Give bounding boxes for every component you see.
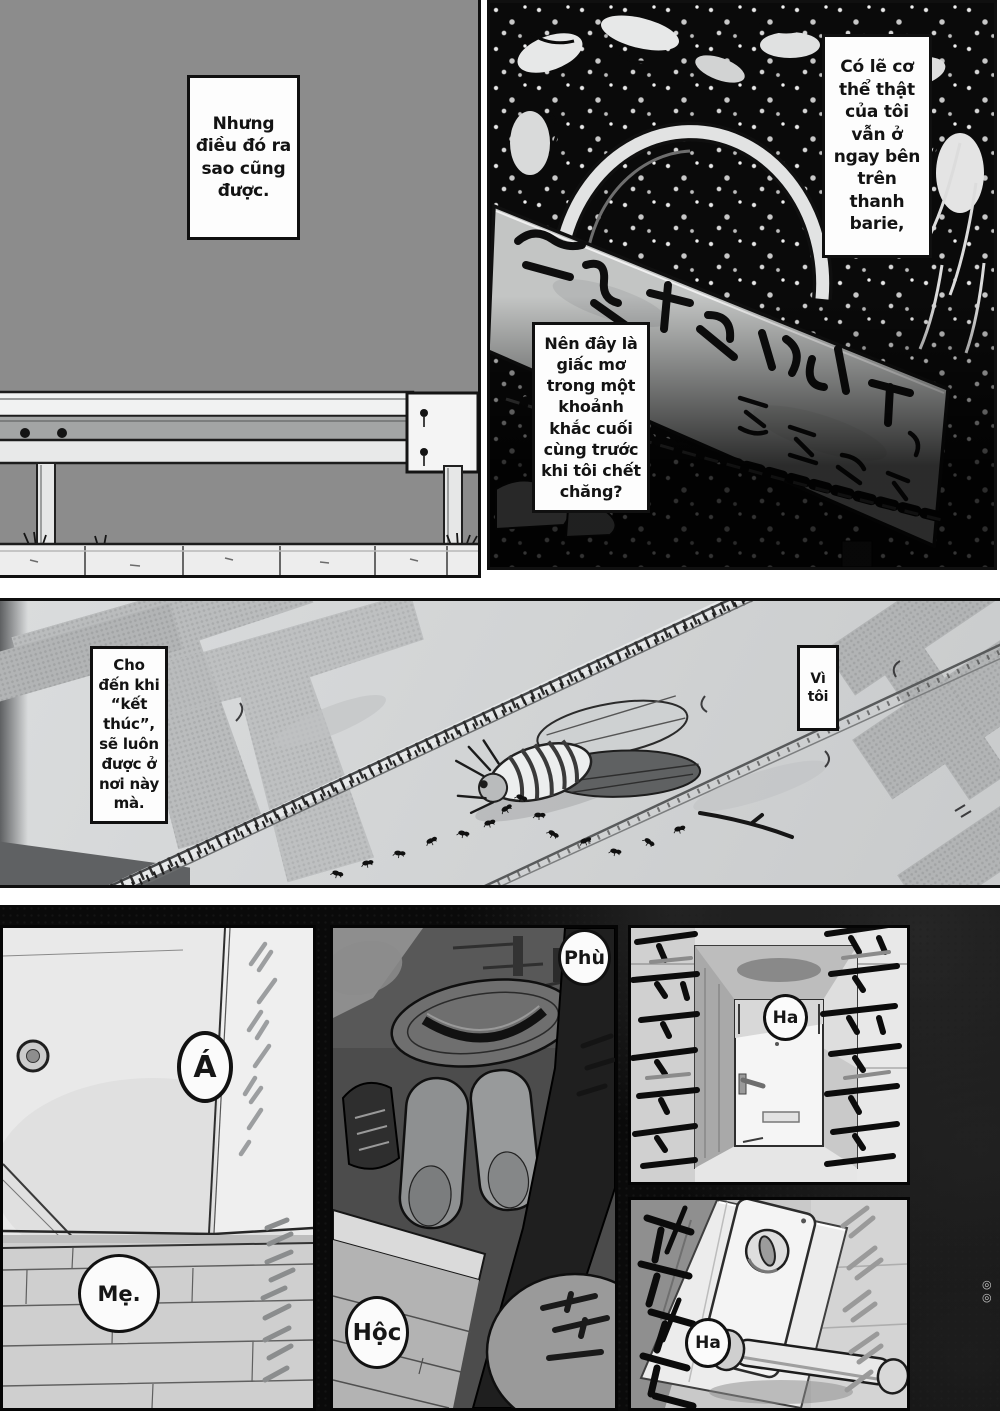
panel-hallway <box>628 925 910 1185</box>
bubble-breath-1: Ha <box>763 994 808 1041</box>
bubble-sigh: Phù <box>558 929 611 986</box>
bubble-breath-2: Ha <box>685 1318 731 1368</box>
manga-page: Nhưng điều đó ra sao cũng được. Có lẽ cơ… <box>0 0 1000 1411</box>
caption-middle-right: Vì tôi <box>797 645 839 731</box>
bubble-gasp: Á <box>177 1031 233 1103</box>
night-section <box>0 905 1000 1411</box>
edge-marks: ◎ ◎ <box>982 1279 992 1303</box>
panel-door-lock <box>628 1197 910 1411</box>
caption-mid-right: Nên đây là giấc mơ trong một khoảnh khắc… <box>532 322 650 513</box>
panel-entry-door <box>0 925 316 1411</box>
entry-door-art <box>3 928 313 1408</box>
bubble-pant: Hộc <box>345 1296 409 1369</box>
edge-mark: ◎ <box>982 1292 992 1303</box>
door-lock-art <box>631 1200 907 1408</box>
caption-top-right: Có lẽ cơ thể thật của tôi vẫn ở ngay bên… <box>822 34 932 258</box>
edge-mark: ◎ <box>982 1279 992 1290</box>
caption-middle-left: Cho đến khi “kết thúc”, sẽ luôn được ở n… <box>90 646 168 824</box>
hallway-art <box>631 928 907 1182</box>
caption-top-left: Nhưng điều đó ra sao cũng được. <box>187 75 300 240</box>
bubble-mom: Mẹ. <box>78 1254 160 1333</box>
